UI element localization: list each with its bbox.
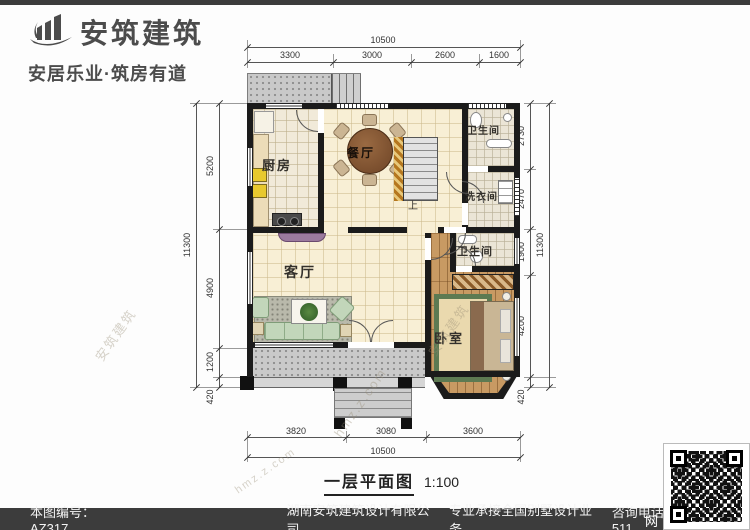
dim-left-seg-2: 4900 [205,268,215,308]
dim-left-seg-3: 1200 [205,342,215,382]
bed [470,301,514,371]
dim-left-seg-4: 420 [205,377,215,417]
bathtub [486,139,512,148]
dim-top-seg-2: 3000 [347,50,397,60]
brand-block: 安筑建筑 安居乐业·筑房有道 [28,12,204,86]
qr-code-icon [663,443,750,530]
dim-bottom-seg-3: 3600 [448,426,498,436]
dim-left-overall: 11300 [182,225,192,265]
nightstand-lamp [502,292,511,301]
washing-machine [498,180,513,204]
room-label-living: 客厅 [284,262,316,282]
room-label-bedroom: 卧室 [434,328,464,347]
dining-chair [362,114,377,126]
dim-bottom-seg-1: 3820 [271,426,321,436]
step-post [401,418,412,429]
window-living-bottom [255,342,333,348]
armchair [252,297,269,318]
footer-service: 专业承接全国别墅设计业务 [449,500,598,530]
plan-title: 一层平面图 [324,468,414,496]
window-bedroom-right [514,298,520,356]
wardrobe [452,274,514,290]
stove [272,213,302,226]
footer-company: 湖南安筑建筑设计有限公司 [286,500,435,530]
stair-up-label: 上 [408,197,420,212]
dim-right-seg-5: 420 [516,377,526,417]
footer-drawing-no: 本图编号：AZ317 [30,502,128,530]
brand-name: 安筑建筑 [80,12,204,52]
watermark-text: 安筑建筑 [90,304,140,364]
terrace-steps [331,74,361,103]
window-kitchen-top [266,103,302,109]
room-label-bath-bedroom: 卫生间 [457,243,493,259]
side-table [252,322,264,335]
room-label-bath-top: 卫生间 [467,122,500,137]
floorplan-sheet: 安筑建筑 安居乐业·筑房有道 10500 3300 3000 2600 1600… [0,0,750,530]
watermark-text: hmz.z.com [233,446,298,497]
dim-top-overall: 10500 [358,35,408,45]
window-dining-top [336,103,388,109]
window-laundry-right [514,178,520,216]
window-bath-top [468,103,506,109]
dim-bottom-overall: 10500 [358,446,408,456]
room-label-laundry: 洗衣间 [465,188,498,203]
plan-title-row: 一层平面图 1:100 [324,468,459,496]
room-label-kitchen: 厨房 [262,155,292,174]
porch-column [240,376,254,390]
plant [300,303,318,321]
fridge [254,111,274,133]
dining-chair [362,174,377,186]
dim-left-seg-1: 5200 [205,146,215,186]
window-living-left [247,252,253,304]
brand-logo-icon [28,12,76,52]
porch [247,348,425,377]
dim-top-seg-1: 3300 [265,50,315,60]
entry-steps [334,388,412,418]
step-post [334,418,345,429]
tv-console [278,233,326,242]
footer-qr-side-text: 网 [645,511,658,530]
window-bath-bedroom-right [514,238,520,264]
room-label-dining: 餐厅 [347,144,375,161]
dim-top-seg-3: 2600 [420,50,470,60]
dim-top-seg-4: 1600 [475,50,523,60]
plan-scale: 1:100 [424,474,459,490]
window-kitchen-left [247,148,253,186]
staircase-hatch [394,137,404,201]
footer-bar: 本图编号：AZ317 湖南安筑建筑设计有限公司 专业承接全国别墅设计业务 咨询电… [0,508,750,530]
top-border-bar [0,0,750,5]
dim-right-overall: 11300 [535,225,545,265]
bath-sink [503,113,512,122]
sofa-main [264,322,340,340]
brand-tagline: 安居乐业·筑房有道 [28,60,204,86]
kitchen-sink [252,184,267,198]
